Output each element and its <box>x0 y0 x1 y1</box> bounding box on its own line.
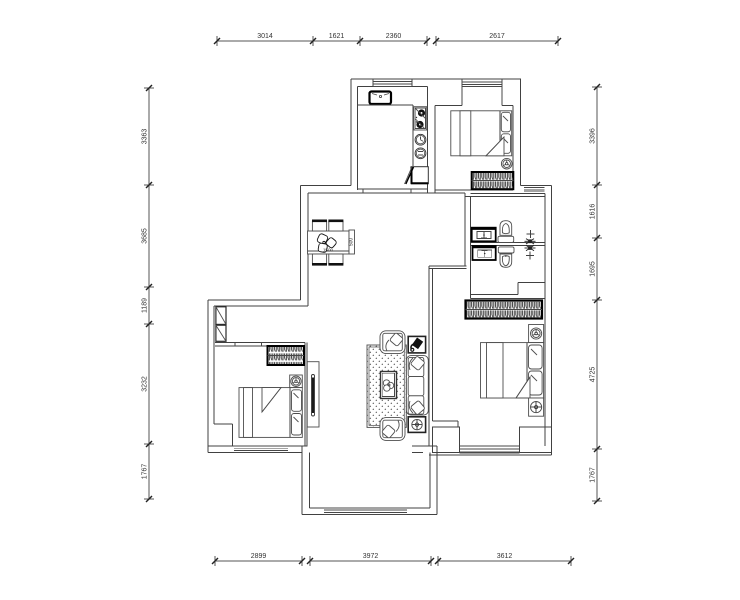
svg-text:1616: 1616 <box>590 204 597 220</box>
svg-text:3612: 3612 <box>497 553 513 560</box>
svg-text:3232: 3232 <box>142 376 149 392</box>
svg-text:3014: 3014 <box>257 33 273 40</box>
svg-text:1767: 1767 <box>142 464 149 480</box>
svg-text:3396: 3396 <box>590 128 597 144</box>
svg-text:1767: 1767 <box>590 467 597 483</box>
svg-text:1621: 1621 <box>329 33 345 40</box>
svg-text:3363: 3363 <box>142 129 149 145</box>
svg-text:2360: 2360 <box>386 33 402 40</box>
svg-text:2617: 2617 <box>489 33 505 40</box>
svg-text:4725: 4725 <box>590 367 597 383</box>
svg-text:1695: 1695 <box>590 261 597 277</box>
svg-text:500: 500 <box>349 238 355 247</box>
svg-text:2899: 2899 <box>251 553 267 560</box>
svg-text:1500: 1500 <box>323 248 334 253</box>
svg-text:3972: 3972 <box>363 553 379 560</box>
svg-text:3685: 3685 <box>142 228 149 244</box>
svg-text:1189: 1189 <box>142 298 149 313</box>
